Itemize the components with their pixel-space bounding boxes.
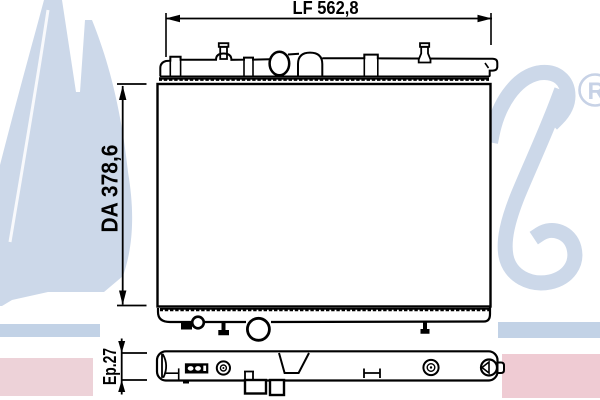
svg-text:LF 562,8: LF 562,8 <box>293 0 359 18</box>
svg-text:R: R <box>588 78 600 105</box>
svg-text:Ep.27: Ep.27 <box>100 348 120 385</box>
svg-text:DA 378,6: DA 378,6 <box>97 145 123 233</box>
